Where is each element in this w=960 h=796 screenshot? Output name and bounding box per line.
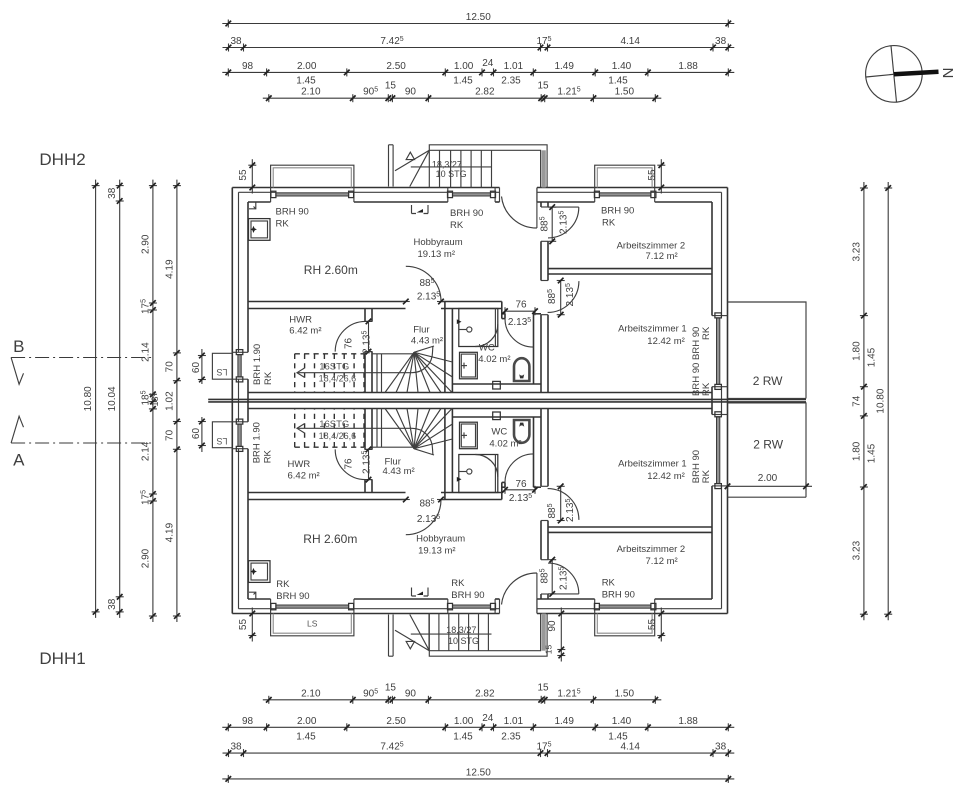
svg-text:RK: RK [263,371,274,385]
svg-text:2.14: 2.14 [140,342,151,362]
svg-text:2.82: 2.82 [475,87,495,98]
svg-text:A: A [13,451,25,470]
svg-text:WC: WC [479,343,495,354]
svg-text:1.45: 1.45 [453,76,473,87]
svg-text:RK: RK [701,469,712,483]
svg-text:BRH 90: BRH 90 [276,591,309,602]
svg-text:60: 60 [191,362,202,374]
svg-text:2.14: 2.14 [140,441,151,461]
svg-text:2.90: 2.90 [140,234,151,254]
svg-text:RK: RK [276,579,290,590]
svg-text:Arbeitszimmer 2: Arbeitszimmer 2 [617,544,686,555]
svg-text:RK: RK [450,220,464,231]
svg-text:10 STG: 10 STG [448,636,479,646]
svg-text:HWR: HWR [289,314,312,325]
svg-text:RK: RK [701,326,712,340]
svg-text:1.49: 1.49 [554,61,574,72]
svg-text:1.80: 1.80 [851,441,862,461]
svg-text:55: 55 [647,619,658,631]
svg-text:10.80: 10.80 [83,386,94,411]
svg-text:6.42 m²: 6.42 m² [288,471,320,482]
svg-text:Arbeitszimmer 1: Arbeitszimmer 1 [618,324,687,335]
svg-text:2.10: 2.10 [301,87,321,98]
svg-text:2.90: 2.90 [140,548,151,568]
svg-text:BRH 1.90: BRH 1.90 [252,344,263,385]
svg-text:1.02: 1.02 [164,391,175,411]
svg-text:6.42 m²: 6.42 m² [289,326,321,337]
svg-text:18,4/26,6: 18,4/26,6 [319,431,357,441]
svg-text:RH 2.60m: RH 2.60m [303,532,357,546]
svg-text:16STG: 16STG [319,419,349,430]
svg-text:24: 24 [482,58,494,69]
svg-text:1.01: 1.01 [504,61,524,72]
svg-text:76: 76 [344,337,355,349]
svg-text:BRH 1.90: BRH 1.90 [252,422,263,463]
svg-text:38: 38 [107,598,118,610]
svg-text:7.12 m²: 7.12 m² [646,556,678,567]
svg-text:4.14: 4.14 [620,742,640,753]
svg-text:3.23: 3.23 [851,540,862,560]
svg-text:12.50: 12.50 [466,12,491,23]
svg-text:10.80: 10.80 [876,388,887,413]
svg-text:38: 38 [715,36,727,47]
svg-text:DHH1: DHH1 [39,649,85,668]
svg-text:90: 90 [405,688,417,699]
svg-text:2.50: 2.50 [386,61,406,72]
svg-text:2.00: 2.00 [297,716,317,727]
svg-text:19.13 m²: 19.13 m² [418,249,456,260]
svg-text:1.40: 1.40 [612,716,632,727]
svg-text:2.50: 2.50 [386,716,406,727]
svg-text:74: 74 [851,395,862,407]
svg-text:1.45: 1.45 [453,732,473,743]
svg-text:1.00: 1.00 [454,716,474,727]
svg-text:BRH 90: BRH 90 [601,206,634,217]
svg-text:RK: RK [451,578,465,589]
svg-text:LS: LS [216,436,227,446]
svg-text:1.00: 1.00 [454,61,474,72]
svg-text:BRH 90: BRH 90 [450,208,483,219]
svg-text:3.23: 3.23 [851,242,862,262]
svg-text:90: 90 [547,620,558,632]
svg-text:76: 76 [515,479,527,490]
svg-text:38: 38 [107,187,118,199]
svg-text:18,3/27: 18,3/27 [446,625,476,635]
svg-text:55: 55 [238,169,249,181]
svg-text:15: 15 [385,682,397,693]
svg-text:76: 76 [344,458,355,470]
svg-text:2 RW: 2 RW [753,438,783,452]
svg-text:RK: RK [701,382,712,396]
svg-text:1.88: 1.88 [678,61,698,72]
svg-text:38: 38 [715,742,727,753]
svg-text:4.19: 4.19 [164,259,175,279]
svg-text:Hobbyraum: Hobbyraum [414,237,463,248]
svg-text:4.14: 4.14 [620,36,640,47]
svg-text:1.40: 1.40 [612,61,632,72]
svg-text:12.50: 12.50 [466,767,491,778]
svg-text:10.04: 10.04 [107,386,118,411]
svg-text:WC: WC [491,427,507,438]
svg-text:15: 15 [385,81,397,92]
svg-text:24: 24 [482,713,494,724]
svg-text:1.49: 1.49 [554,716,574,727]
svg-text:RK: RK [602,218,616,229]
svg-text:RK: RK [276,219,290,230]
svg-text:70: 70 [164,429,175,441]
svg-text:HWR: HWR [288,459,311,470]
svg-text:2.10: 2.10 [301,688,321,699]
svg-text:LS: LS [307,619,318,629]
svg-text:70: 70 [164,361,175,373]
svg-text:BRH 90: BRH 90 [451,590,484,601]
svg-text:1.45: 1.45 [296,732,316,743]
svg-text:1.50: 1.50 [615,87,635,98]
svg-text:4.43 m²: 4.43 m² [411,336,443,347]
svg-text:7.12 m²: 7.12 m² [646,251,678,262]
svg-text:1.45: 1.45 [296,76,316,87]
svg-text:1.45: 1.45 [867,347,878,367]
svg-text:1.50: 1.50 [615,688,635,699]
svg-text:98: 98 [242,716,254,727]
svg-text:12.42 m²: 12.42 m² [647,336,685,347]
svg-text:1.01: 1.01 [504,716,524,727]
svg-text:55: 55 [238,619,249,631]
svg-text:1.45: 1.45 [867,443,878,463]
svg-text:DHH2: DHH2 [39,150,85,169]
svg-text:2.00: 2.00 [297,61,317,72]
svg-text:19.13 m²: 19.13 m² [418,546,456,557]
svg-text:55: 55 [647,169,658,181]
svg-text:1.88: 1.88 [678,716,698,727]
svg-text:12.42 m²: 12.42 m² [647,471,685,482]
svg-text:98: 98 [242,61,254,72]
svg-text:BRH 90: BRH 90 [276,207,309,218]
svg-text:Hobbyraum: Hobbyraum [416,534,465,545]
svg-text:2.00: 2.00 [758,473,778,484]
svg-text:4.02 m²: 4.02 m² [489,439,521,450]
svg-text:BRH 90: BRH 90 [602,590,635,601]
svg-text:60: 60 [191,428,202,440]
svg-text:RK: RK [263,449,274,463]
svg-text:16STG: 16STG [319,362,349,373]
svg-text:10 STG: 10 STG [436,169,467,179]
svg-text:LS: LS [216,367,227,377]
svg-text:Arbeitszimmer 2: Arbeitszimmer 2 [617,241,686,252]
svg-text:18,3/27: 18,3/27 [432,160,462,170]
svg-text:B: B [13,337,24,356]
svg-text:1.45: 1.45 [608,76,628,87]
svg-text:76: 76 [515,300,527,311]
svg-text:15: 15 [537,682,549,693]
svg-text:RK: RK [602,578,616,589]
svg-text:38: 38 [230,36,242,47]
svg-text:N: N [939,68,956,79]
svg-text:15: 15 [537,81,549,92]
svg-text:1.80: 1.80 [851,341,862,361]
svg-text:2.35: 2.35 [501,76,521,87]
svg-text:90: 90 [405,87,417,98]
svg-text:38: 38 [230,742,242,753]
svg-text:18,4/26,6: 18,4/26,6 [319,374,357,384]
svg-text:4.19: 4.19 [164,522,175,542]
svg-text:4.43 m²: 4.43 m² [383,466,415,477]
svg-text:2.35: 2.35 [501,732,521,743]
svg-text:Arbeitszimmer 1: Arbeitszimmer 1 [618,459,687,470]
svg-text:RH 2.60m: RH 2.60m [304,263,358,277]
svg-text:4.02 m²: 4.02 m² [478,354,510,365]
svg-text:Flur: Flur [413,325,429,336]
svg-text:2.82: 2.82 [475,688,495,699]
svg-text:2 RW: 2 RW [753,374,783,388]
